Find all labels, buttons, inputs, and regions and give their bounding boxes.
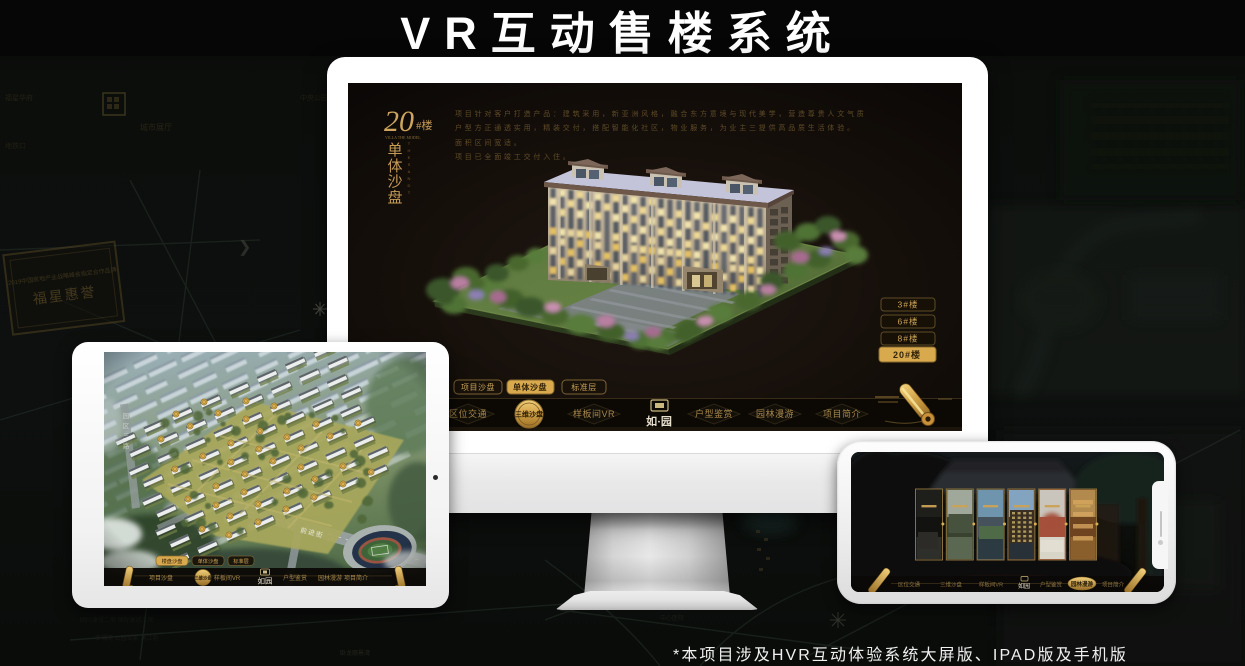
svg-text:S: S (408, 162, 411, 167)
svg-text:户型鉴赏: 户型鉴赏 (1040, 581, 1063, 589)
svg-text:D: D (408, 183, 411, 188)
svg-text:体: 体 (387, 158, 402, 175)
svg-text:单体沙盘: 单体沙盘 (198, 557, 219, 565)
svg-text:20#楼: 20#楼 (893, 349, 921, 360)
svg-text:项目针对客户打造产品：建筑采用，新亚洲风格，融合东方意境与现: 项目针对客户打造产品：建筑采用，新亚洲风格，融合东方意境与现代美学，营造尊贵人文… (455, 109, 867, 118)
svg-text:沙: 沙 (387, 175, 402, 191)
svg-text:幸福湾 公园世家 滨江苑: 幸福湾 公园世家 滨江苑 (95, 634, 158, 642)
svg-text:项目沙盘: 项目沙盘 (149, 574, 173, 582)
svg-text:盘: 盘 (387, 188, 402, 206)
svg-text:国际康城二期 国际康城三期: 国际康城二期 国际康城三期 (80, 616, 154, 624)
svg-text:单体沙盘: 单体沙盘 (513, 382, 547, 392)
svg-text:项目简介: 项目简介 (823, 408, 861, 419)
svg-text:户型方正通透实用，精装交付，搭配智能化社区，物业服务，为业主: 户型方正通透实用，精装交付，搭配智能化社区，物业服务，为业主三提供高品质生活体验… (455, 123, 857, 132)
svg-text:如园: 如园 (1018, 582, 1030, 590)
svg-text:项目简介: 项目简介 (1102, 581, 1125, 589)
svg-text:中心医院: 中心医院 (660, 614, 684, 622)
svg-text:标准层: 标准层 (233, 557, 249, 565)
svg-text:项目沙盘: 项目沙盘 (461, 382, 495, 392)
svg-text:如·园: 如·园 (646, 414, 672, 428)
svg-text:8#楼: 8#楼 (898, 334, 919, 344)
svg-text:20: 20 (384, 105, 414, 138)
svg-text:园林漫游: 园林漫游 (1071, 580, 1094, 588)
svg-text:福星华府: 福星华府 (5, 93, 33, 102)
svg-text:E: E (408, 155, 411, 160)
svg-text:户型鉴赏: 户型鉴赏 (283, 574, 307, 582)
svg-text:样板间VR: 样板间VR (979, 581, 1003, 589)
svg-text:#楼: #楼 (416, 118, 433, 132)
svg-text:卧龙丽景湾: 卧龙丽景湾 (340, 649, 370, 657)
svg-text:标准层: 标准层 (571, 382, 597, 392)
svg-text:面积区间宽适。: 面积区间宽适。 (455, 138, 524, 147)
svg-text:楼盘沙盘: 楼盘沙盘 (162, 557, 183, 565)
svg-text:户型鉴赏: 户型鉴赏 (695, 408, 733, 419)
svg-text:区位交通: 区位交通 (449, 408, 487, 419)
svg-text:地铁口: 地铁口 (5, 141, 26, 150)
svg-text:❯: ❯ (238, 239, 251, 256)
svg-text:园林漫游: 园林漫游 (756, 408, 794, 419)
svg-text:项目已全面竣工交付入住。: 项目已全面竣工交付入住。 (455, 152, 573, 161)
svg-text:区位交通: 区位交通 (898, 581, 921, 589)
svg-text:三维沙盘: 三维沙盘 (515, 410, 543, 419)
svg-text:如园: 如园 (258, 576, 273, 586)
svg-text:H: H (408, 148, 411, 153)
svg-text:6#楼: 6#楼 (898, 317, 919, 327)
svg-text:中央公园: 中央公园 (300, 93, 328, 102)
svg-text:VILLA THE MODEL: VILLA THE MODEL (385, 135, 421, 140)
svg-text:城市展厅: 城市展厅 (140, 122, 172, 132)
svg-text:单: 单 (387, 142, 402, 159)
svg-text:三维沙盘: 三维沙盘 (194, 575, 212, 582)
svg-text:N: N (408, 176, 411, 181)
svg-text:3#楼: 3#楼 (898, 300, 919, 310)
svg-text:项目简介: 项目简介 (344, 574, 368, 582)
svg-text:三维沙盘: 三维沙盘 (940, 581, 963, 589)
svg-text:园林漫游: 园林漫游 (318, 574, 342, 582)
svg-text:样板间VR: 样板间VR (214, 574, 241, 582)
svg-text:样板间VR: 样板间VR (573, 408, 615, 419)
svg-text:A: A (408, 169, 411, 174)
